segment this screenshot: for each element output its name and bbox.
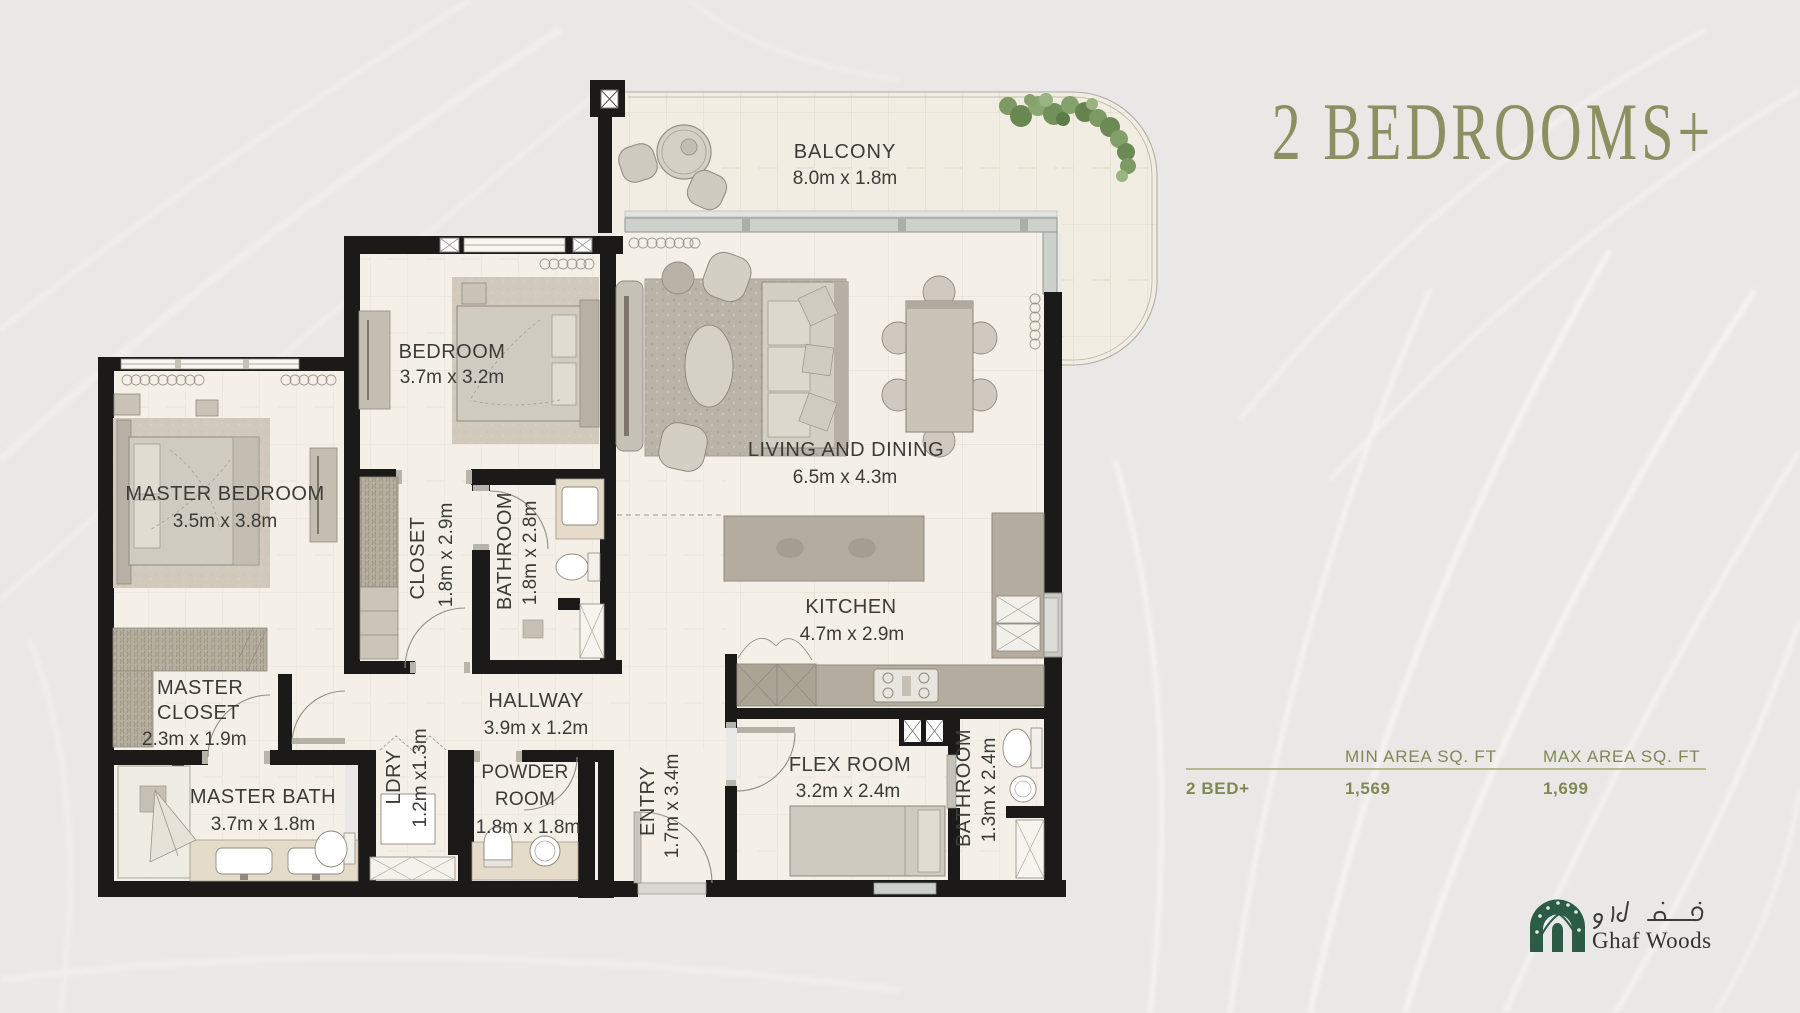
svg-text:MASTER BATH: MASTER BATH [190,786,336,808]
svg-text:1,699: 1,699 [1543,779,1589,798]
svg-text:FLEX ROOM: FLEX ROOM [789,754,911,776]
svg-text:MAX AREA SQ. FT: MAX AREA SQ. FT [1543,747,1700,766]
svg-text:BATHROOM: BATHROOM [953,729,975,847]
svg-text:3.2m x 2.4m: 3.2m x 2.4m [796,781,901,802]
svg-text:KITCHEN: KITCHEN [805,596,896,618]
svg-text:1,569: 1,569 [1345,779,1391,798]
svg-text:MASTER: MASTER [157,677,243,699]
svg-text:1.7m x 3.4m: 1.7m x 3.4m [662,754,683,859]
svg-text:CLOSET: CLOSET [407,516,429,599]
svg-text:LDRY: LDRY [383,750,405,805]
svg-text:Ghaf Woods: Ghaf Woods [1592,928,1712,953]
svg-text:1.8m x 2.8m: 1.8m x 2.8m [520,501,541,606]
svg-text:2 BEDROOMS+: 2 BEDROOMS+ [1272,88,1714,178]
svg-text:1.8m x 1.8m: 1.8m x 1.8m [476,817,581,838]
svg-text:ROOM: ROOM [495,789,555,810]
svg-text:3.5m x 3.8m: 3.5m x 3.8m [173,511,278,532]
svg-text:LIVING AND DINING: LIVING AND DINING [748,439,944,461]
svg-text:MIN AREA SQ. FT: MIN AREA SQ. FT [1345,747,1497,766]
svg-text:1.3m x 2.4m: 1.3m x 2.4m [979,738,1000,843]
svg-text:2.3m x 1.9m: 2.3m x 1.9m [142,729,247,750]
svg-text:2 BED+: 2 BED+ [1186,779,1250,798]
svg-text:1.2m x1.3m: 1.2m x1.3m [410,728,431,827]
svg-text:6.5m x 4.3m: 6.5m x 4.3m [793,467,898,488]
svg-text:ENTRY: ENTRY [637,766,659,836]
svg-text:HALLWAY: HALLWAY [488,690,583,712]
svg-text:CLOSET: CLOSET [157,702,240,724]
svg-text:3.7m x 1.8m: 3.7m x 1.8m [211,814,316,835]
svg-text:3.9m x 1.2m: 3.9m x 1.2m [484,718,589,739]
svg-text:BALCONY: BALCONY [794,141,897,163]
svg-text:POWDER: POWDER [481,762,568,783]
svg-text:4.7m x 2.9m: 4.7m x 2.9m [800,624,905,645]
svg-text:1.8m x 2.9m: 1.8m x 2.9m [436,503,457,608]
svg-text:MASTER BEDROOM: MASTER BEDROOM [125,483,324,505]
svg-text:BEDROOM: BEDROOM [399,341,506,363]
svg-text:3.7m x 3.2m: 3.7m x 3.2m [400,367,505,388]
svg-text:8.0m x 1.8m: 8.0m x 1.8m [793,168,898,189]
svg-text:BATHROOM: BATHROOM [494,492,516,610]
